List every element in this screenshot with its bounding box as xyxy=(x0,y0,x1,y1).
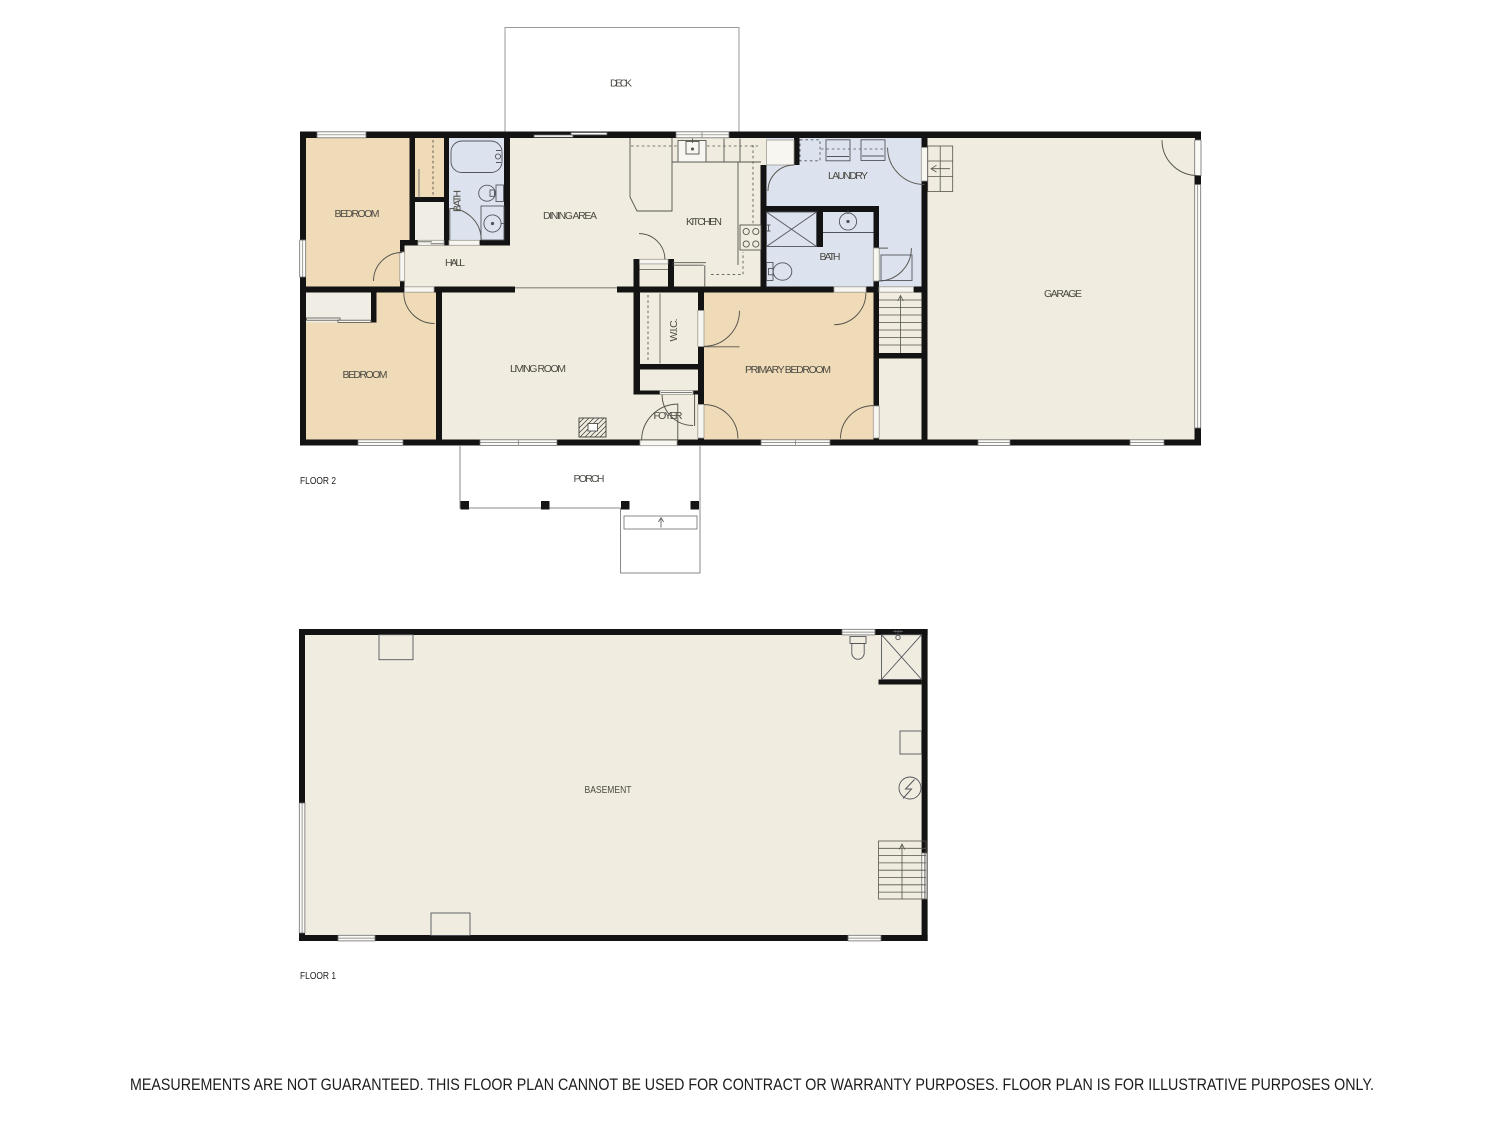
svg-text:MEASUREMENTS ARE NOT GUARANTEE: MEASUREMENTS ARE NOT GUARANTEED. THIS FL… xyxy=(130,1076,1374,1094)
svg-text:HALL: HALL xyxy=(445,257,465,269)
svg-text:FLOOR 1: FLOOR 1 xyxy=(300,970,336,982)
svg-text:GARAGE: GARAGE xyxy=(1044,288,1082,300)
svg-text:PRIMARY BEDROOM: PRIMARY BEDROOM xyxy=(745,364,831,376)
svg-text:W.I.C.: W.I.C. xyxy=(668,319,680,342)
svg-text:DINING AREA: DINING AREA xyxy=(543,210,597,222)
svg-text:BASEMENT: BASEMENT xyxy=(585,784,632,796)
svg-text:BATH: BATH xyxy=(452,190,464,212)
svg-text:FOYER: FOYER xyxy=(654,410,683,422)
svg-text:FLOOR 2: FLOOR 2 xyxy=(300,475,336,487)
svg-text:DECK: DECK xyxy=(610,78,632,90)
svg-text:BEDROOM: BEDROOM xyxy=(335,208,380,220)
svg-text:KITCHEN: KITCHEN xyxy=(686,216,722,228)
svg-text:LAUNDRY: LAUNDRY xyxy=(828,170,868,182)
svg-text:BATH: BATH xyxy=(820,251,841,263)
svg-text:LIVING ROOM: LIVING ROOM xyxy=(510,363,566,375)
svg-text:BEDROOM: BEDROOM xyxy=(343,369,388,381)
svg-text:PORCH: PORCH xyxy=(574,473,605,485)
